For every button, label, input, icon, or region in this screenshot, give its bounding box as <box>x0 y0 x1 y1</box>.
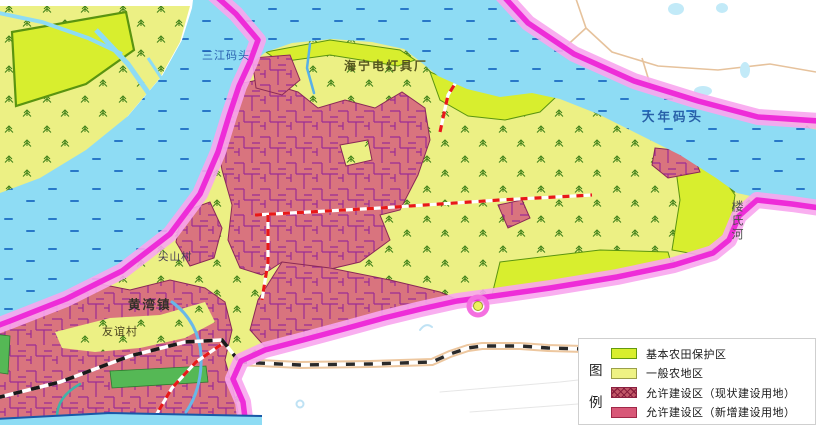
legend-label-protected-farmland: 基本农田保护区 <box>646 346 727 362</box>
label-lamp-factory: 海宁电灯具厂 <box>344 60 428 72</box>
label-village-southwest: 友谊村 <box>102 326 138 337</box>
landuse-planning-map: 三江码头 海宁电灯具厂 大年码头 楼氏河 黄湾镇 尖山村 友谊村 图 例 基本农… <box>0 0 816 425</box>
legend-label-built-existing: 允许建设区（现状建设用地） <box>646 385 796 401</box>
label-sanjiang-dock: 三江码头 <box>202 50 250 61</box>
legend-label-built-new: 允许建设区（新增建设用地） <box>646 404 796 420</box>
label-danian-dock: 大年码头 <box>642 111 704 124</box>
legend-swatch-built-existing <box>611 387 637 398</box>
legend-row-built-existing: 允许建设区（现状建设用地） <box>611 383 796 403</box>
label-huangwan-town: 黄湾镇 <box>128 299 172 312</box>
legend-row-general-farmland: 一般农地区 <box>611 364 796 384</box>
legend-swatch-general-farmland <box>611 368 637 379</box>
label-village-west: 尖山村 <box>158 252 193 263</box>
legend-row-built-new: 允许建设区（新增建设用地） <box>611 403 796 423</box>
legend-title-char-1: 图 <box>589 359 603 379</box>
label-loushi-river: 楼氏河 <box>731 200 743 242</box>
legend-rows: 基本农田保护区 一般农地区 允许建设区（现状建设用地） 允许建设区（新增建设用地… <box>611 344 796 422</box>
legend-row-protected-farmland: 基本农田保护区 <box>611 344 796 364</box>
legend-swatch-built-new <box>611 407 637 418</box>
legend-title-char-2: 例 <box>589 391 603 411</box>
legend: 图 例 基本农田保护区 一般农地区 允许建设区（现状建设用地） 允许建设区（新增… <box>578 338 816 425</box>
legend-label-general-farmland: 一般农地区 <box>646 365 704 381</box>
legend-swatch-protected-farmland <box>611 348 637 359</box>
